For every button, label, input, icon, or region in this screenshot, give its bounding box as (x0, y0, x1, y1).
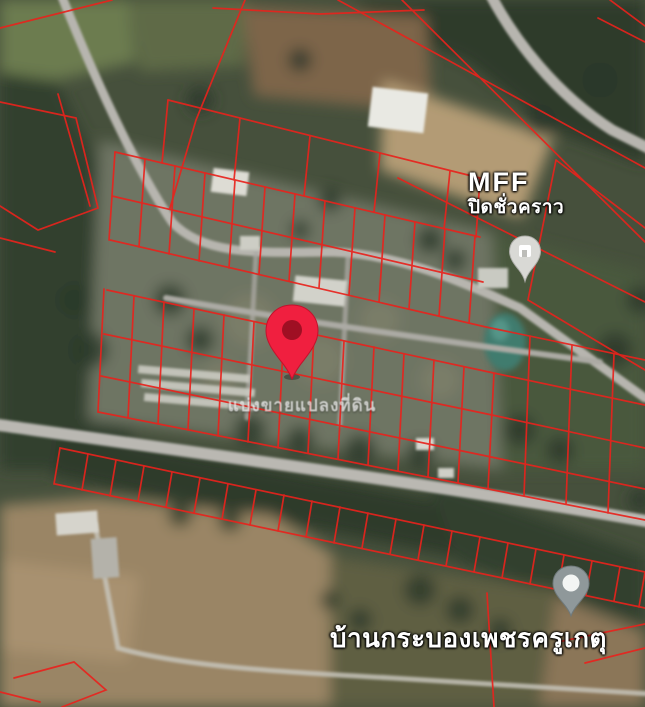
poi-title: MFF (468, 168, 564, 197)
place-pin-icon[interactable] (549, 564, 593, 618)
poi-status: ปิดชั่วคราว (468, 198, 564, 219)
poi-label-mff[interactable]: MFF ปิดชั่วคราว (468, 168, 564, 219)
selected-location-pin[interactable] (262, 303, 322, 381)
map-canvas[interactable]: MFF ปิดชั่วคราว แบ่งขายแปลงที่ดิน บ้านกร… (0, 0, 645, 707)
parcel-dividers-top-row (162, 100, 480, 237)
parcel-dividers-upper (109, 152, 475, 323)
selected-place-caption[interactable]: แบ่งขายแปลงที่ดิน (188, 392, 416, 419)
store-pin-icon[interactable] (506, 234, 544, 286)
poi-label-baan-krabong-phet[interactable]: บ้านกระบองเพชรครูเกตุ (330, 624, 607, 652)
